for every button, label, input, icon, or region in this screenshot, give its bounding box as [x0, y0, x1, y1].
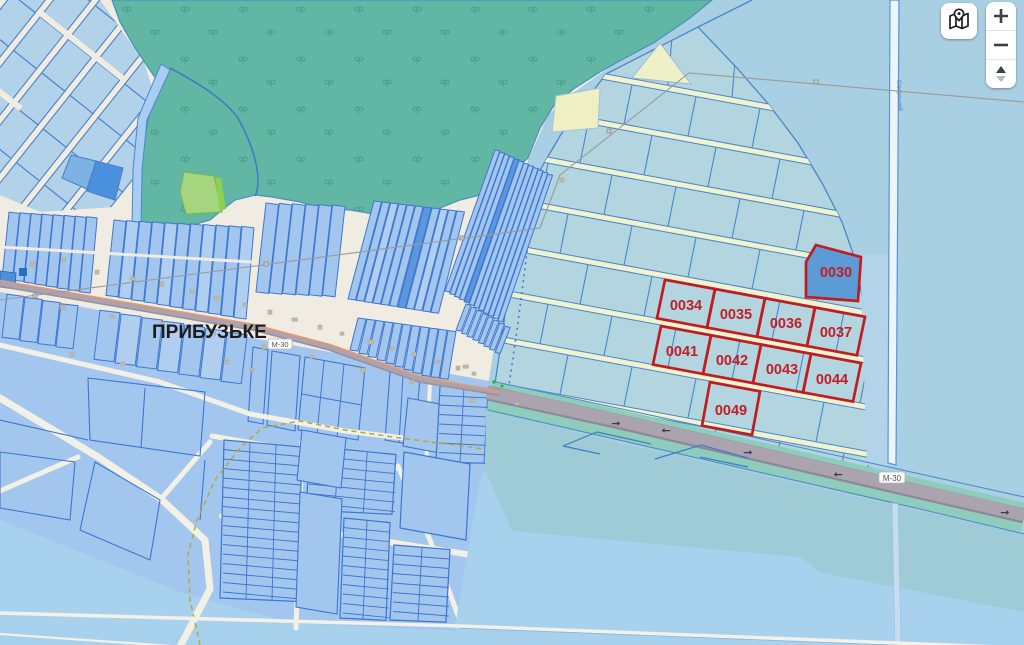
svg-text:М-30: М-30	[883, 474, 902, 483]
svg-text:0034: 0034	[670, 298, 702, 314]
svg-text:0042: 0042	[716, 353, 748, 369]
svg-text:М-30: М-30	[271, 340, 288, 349]
svg-text:0030: 0030	[820, 265, 852, 281]
svg-text:0044: 0044	[816, 372, 848, 388]
svg-text:0043: 0043	[766, 362, 798, 378]
svg-text:0049: 0049	[715, 403, 747, 419]
svg-text:0041: 0041	[666, 344, 698, 360]
svg-text:0035: 0035	[720, 307, 752, 323]
svg-text:0037: 0037	[820, 325, 852, 341]
svg-text:ПРИБУЗЬКЕ: ПРИБУЗЬКЕ	[152, 322, 267, 343]
svg-text:0036: 0036	[770, 316, 802, 332]
